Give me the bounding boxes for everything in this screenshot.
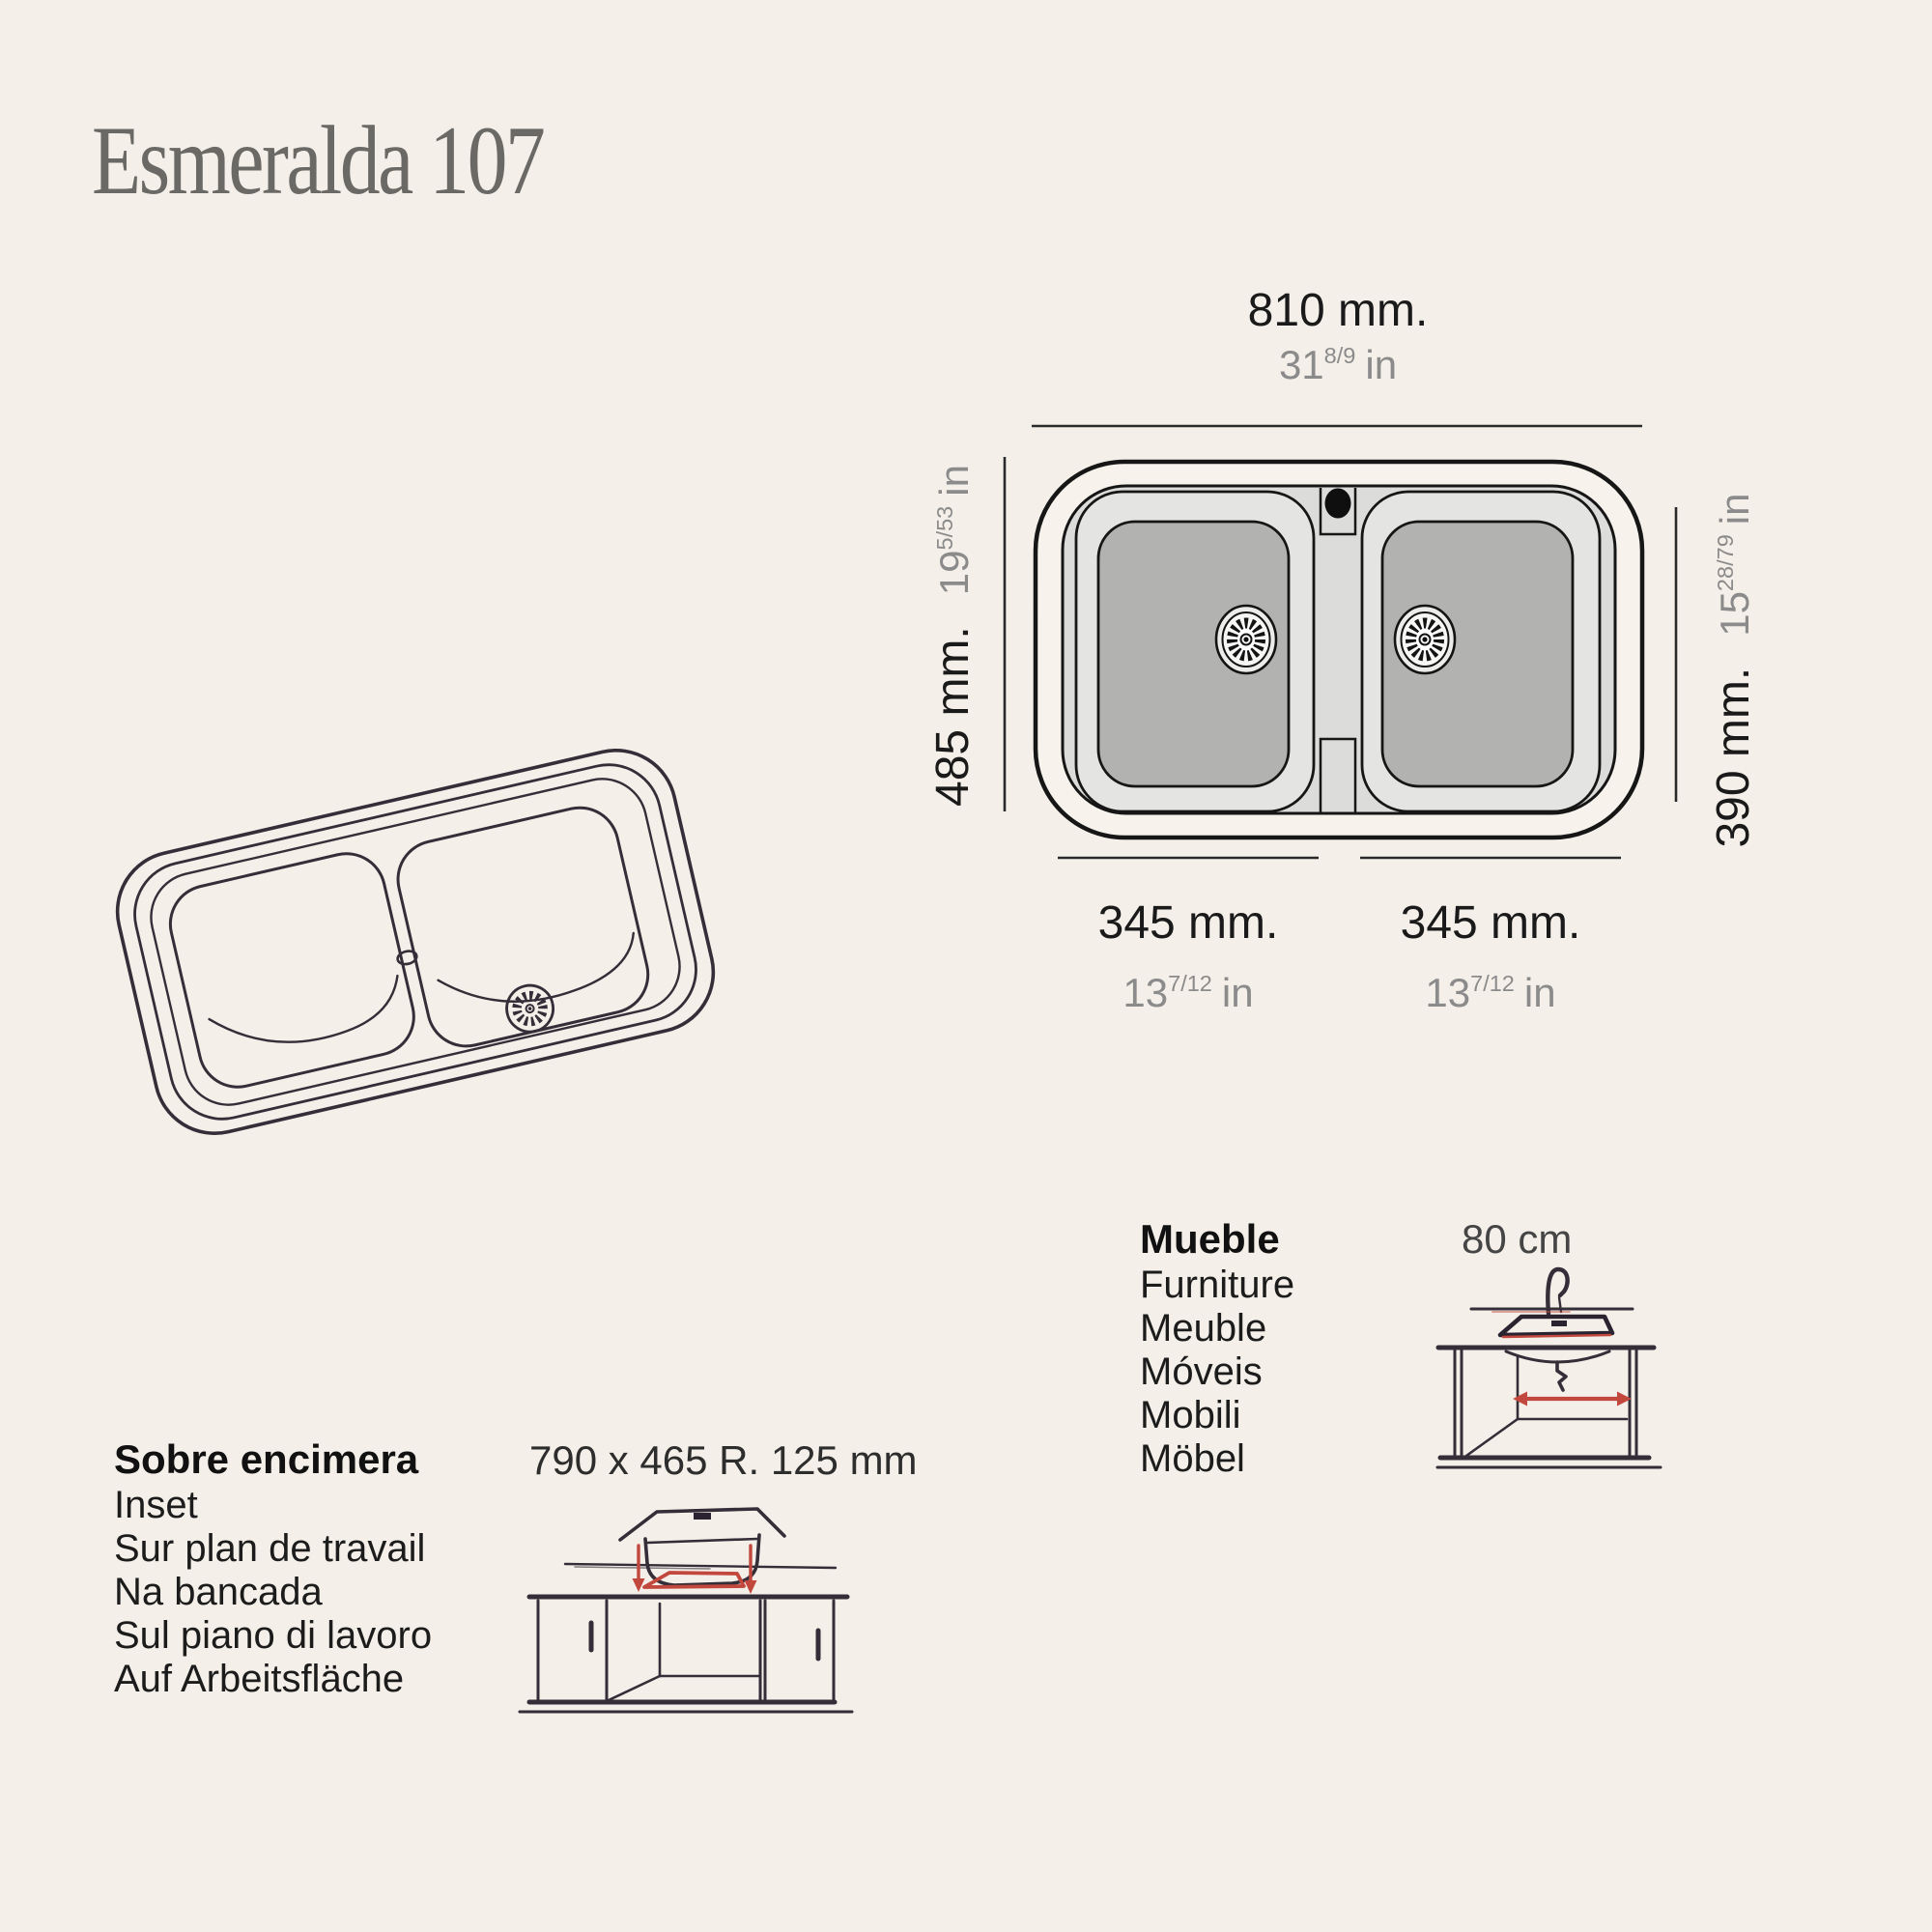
dim-depth-mm: 485 mm. [926,626,980,807]
sink-perspective-sketch [106,744,724,1130]
sketch-left-bowl [162,846,421,1094]
inset-translation: Inset [114,1484,432,1527]
cutout-arrow-left [633,1546,645,1592]
dim-bowl-depth-mm: 390 mm. [1707,668,1760,848]
dim-width-in: 318/9in [1145,342,1531,388]
catalog-page: { "title": "Esmeralda 107", "dimensions"… [0,0,1932,1932]
dim-width-mm: 810 mm. [1145,284,1531,337]
inset-installation-sketch [512,1497,869,1729]
sketch-sink-slab [1500,1317,1612,1337]
furniture-translation: Meuble [1140,1307,1294,1350]
faucet-hole [1325,489,1351,519]
dim-right-bowl-mm: 345 mm. [1297,896,1684,950]
furniture-translation: Möbel [1140,1437,1294,1481]
left-drain-strainer-icon [1216,606,1276,673]
dim-depth-label: 485 mm. 195/53in [926,433,977,838]
page-title: Esmeralda 107 [92,104,543,217]
inset-translation: Na bancada [114,1571,432,1614]
furniture-translation: Móveis [1140,1350,1294,1394]
furniture-translation: Mobili [1140,1394,1294,1437]
inset-heading: Sobre encimera [114,1435,432,1484]
furniture-installation-sketch [1425,1256,1676,1483]
inset-text-block: Sobre encimera Inset Sur plan de travail… [114,1435,432,1701]
sketch-deck-edge [142,770,688,1114]
dim-bowl-depth-in: 1528/79in [1712,494,1758,637]
sink-top-view-drawing [985,411,1690,865]
inset-translation: Auf Arbeitsfläche [114,1658,432,1701]
furniture-heading: Mueble [1140,1215,1294,1264]
cabinet-width-arrow [1513,1392,1632,1406]
cutout-outline [644,1573,744,1587]
dim-right-bowl-in: 137/12in [1297,970,1684,1016]
dim-depth-in: 195/53in [931,465,978,595]
sketch-rim-band [125,754,706,1129]
inset-translation: Sul piano di lavoro [114,1614,432,1658]
sketch-tap-hole [694,1513,711,1520]
furniture-text-block: Mueble Furniture Meuble Móveis Mobili Mö… [1140,1215,1294,1481]
inset-translation: Sur plan de travail [114,1527,432,1571]
cutout-dimension: 790 x 465 R. 125 mm [529,1437,918,1484]
furniture-translation: Furniture [1140,1264,1294,1307]
right-drain-strainer-icon [1395,606,1455,673]
sketch-drain-pipe [1557,1362,1566,1390]
sketch-faucet-icon [1548,1269,1567,1314]
dim-bowl-depth-label: 390 mm. 1528/79in [1707,468,1757,873]
sketch-cabinet-section [1437,1348,1661,1467]
sketch-cabinet-front [520,1597,852,1712]
sketch-left-bowl-floor [210,976,408,1062]
